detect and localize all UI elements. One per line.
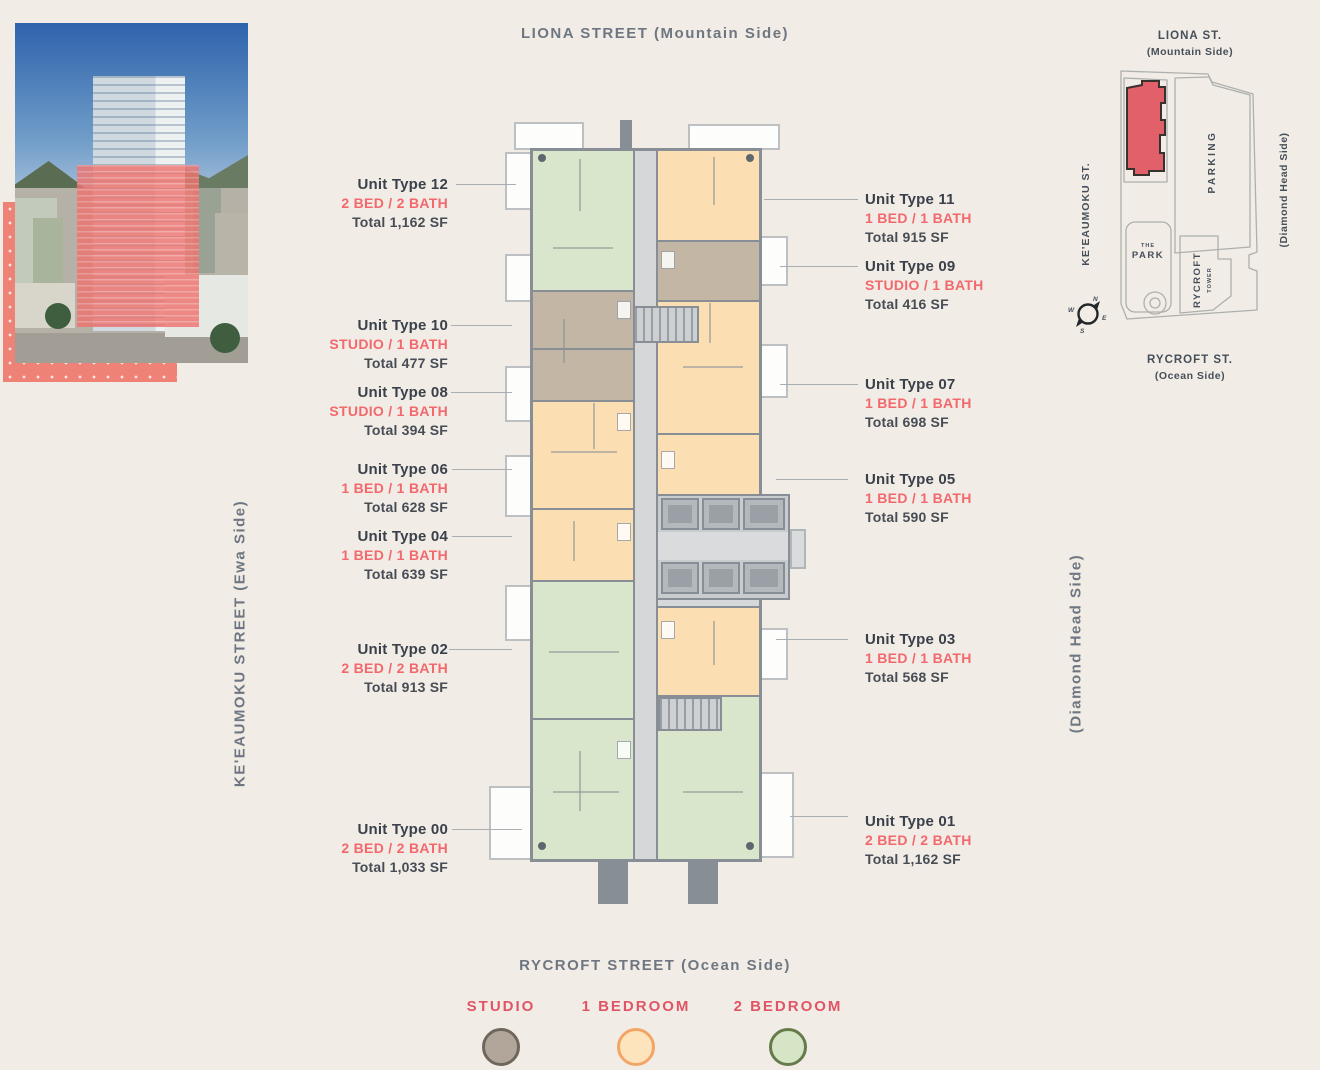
- unit-area: Total 628 SF: [228, 498, 448, 517]
- wall-segment: [713, 157, 715, 205]
- wall-fin: [688, 858, 718, 904]
- legend-swatch-studio: [482, 1028, 520, 1066]
- unit-name: Unit Type 07: [865, 375, 1085, 394]
- sitemap-keeaumoku-st: KE'EAUMOKU ST.: [1080, 162, 1092, 265]
- unit-area: Total 394 SF: [228, 421, 448, 440]
- unit-config: 1 BED / 1 BATH: [865, 209, 1085, 228]
- unit-label-10: Unit Type 10 STUDIO / 1 BATH Total 477 S…: [228, 316, 448, 373]
- corridor: [633, 151, 658, 859]
- wall-segment: [658, 433, 759, 435]
- wall-fin: [598, 858, 628, 904]
- bathroom-fixture: [617, 301, 631, 319]
- unit-08-region: [533, 348, 633, 400]
- unit-name: Unit Type 05: [865, 470, 1085, 489]
- label-connector: [776, 639, 848, 640]
- unit-area: Total 698 SF: [865, 413, 1085, 432]
- unit-label-03: Unit Type 03 1 BED / 1 BATH Total 568 SF: [865, 630, 1085, 687]
- wall-segment: [579, 751, 581, 811]
- column: [746, 154, 754, 162]
- elevator: [661, 498, 699, 530]
- column: [538, 842, 546, 850]
- floorplan-page: LIONA STREET (Mountain Side) RYCROFT STR…: [0, 0, 1320, 1070]
- unit-area: Total 1,033 SF: [228, 858, 448, 877]
- sitemap-park-the: THE: [1141, 243, 1155, 249]
- balcony: [505, 152, 533, 210]
- unit-area: Total 416 SF: [865, 295, 1085, 314]
- highlighted-building-footprint: [1127, 81, 1165, 175]
- label-connector: [456, 184, 516, 185]
- unit-10-region: [533, 290, 633, 348]
- street-label-liona: LIONA STREET (Mountain Side): [435, 25, 875, 42]
- unit-name: Unit Type 04: [228, 527, 448, 546]
- elevator: [743, 498, 785, 530]
- balcony: [760, 344, 788, 398]
- wall-segment: [553, 247, 613, 249]
- unit-name: Unit Type 10: [228, 316, 448, 335]
- sitemap-mountain-side: (Mountain Side): [1147, 46, 1233, 58]
- elevator: [702, 562, 740, 594]
- bathroom-fixture: [617, 523, 631, 541]
- sitemap-parking: PARKING: [1207, 131, 1218, 194]
- balcony: [505, 455, 533, 517]
- elevator: [743, 562, 785, 594]
- bathroom-fixture: [661, 451, 675, 469]
- legend-label-2-bedroom: 2 BEDROOM: [708, 998, 868, 1015]
- unit-config: 1 BED / 1 BATH: [228, 546, 448, 565]
- unit-label-08: Unit Type 08 STUDIO / 1 BATH Total 394 S…: [228, 383, 448, 440]
- legend-swatch-2-bedroom: [769, 1028, 807, 1066]
- sitemap-ocean-side: (Ocean Side): [1155, 370, 1225, 382]
- unit-area: Total 913 SF: [228, 678, 448, 697]
- balcony: [505, 585, 533, 641]
- unit-12-region: [533, 151, 633, 290]
- label-connector: [452, 829, 522, 830]
- unit-name: Unit Type 00: [228, 820, 448, 839]
- unit-area: Total 568 SF: [865, 668, 1085, 687]
- label-connector: [452, 469, 512, 470]
- unit-name: Unit Type 06: [228, 460, 448, 479]
- unit-area: Total 1,162 SF: [865, 850, 1085, 869]
- sitemap-tower: TOWER: [1207, 267, 1213, 292]
- balcony: [514, 122, 584, 150]
- unit-09-region: [658, 240, 759, 300]
- bathroom-fixture: [617, 413, 631, 431]
- unit-name: Unit Type 09: [865, 257, 1085, 276]
- balcony: [760, 628, 788, 680]
- sitemap-park: PARK: [1132, 250, 1164, 261]
- unit-config: STUDIO / 1 BATH: [865, 276, 1085, 295]
- wall-segment: [533, 348, 633, 350]
- column: [538, 154, 546, 162]
- site-map: N E S W LIONA ST. (Mountain Side) KE'EAU…: [1063, 14, 1317, 386]
- unit-name: Unit Type 02: [228, 640, 448, 659]
- bathroom-fixture: [661, 621, 675, 639]
- elevator-lobby: [658, 532, 788, 560]
- label-connector: [764, 199, 858, 200]
- unit-config: STUDIO / 1 BATH: [228, 335, 448, 354]
- elevator-core: [656, 494, 790, 600]
- wall-segment: [579, 159, 581, 211]
- unit-config: 1 BED / 1 BATH: [228, 479, 448, 498]
- wall-segment: [533, 400, 633, 402]
- wall-segment: [713, 621, 715, 665]
- unit-name: Unit Type 03: [865, 630, 1085, 649]
- wall-segment: [658, 240, 759, 242]
- label-connector: [449, 649, 512, 650]
- unit-11-region: [658, 151, 759, 240]
- column: [746, 842, 754, 850]
- unit-label-01: Unit Type 01 2 BED / 2 BATH Total 1,162 …: [865, 812, 1085, 869]
- unit-config: 1 BED / 1 BATH: [865, 649, 1085, 668]
- unit-config: 2 BED / 2 BATH: [228, 194, 448, 213]
- label-connector: [451, 392, 512, 393]
- unit-name: Unit Type 12: [228, 175, 448, 194]
- wall-segment: [709, 303, 711, 343]
- tower-photo: [15, 23, 248, 363]
- unit-area: Total 477 SF: [228, 354, 448, 373]
- bathroom-fixture: [617, 741, 631, 759]
- unit-area: Total 1,162 SF: [228, 213, 448, 232]
- unit-config: 1 BED / 1 BATH: [865, 394, 1085, 413]
- balcony: [505, 254, 533, 302]
- bathroom-fixture: [661, 251, 675, 269]
- wall-segment: [549, 651, 619, 653]
- label-connector: [790, 816, 848, 817]
- wall-segment: [551, 451, 617, 453]
- unit-config: 1 BED / 1 BATH: [865, 489, 1085, 508]
- unit-label-06: Unit Type 06 1 BED / 1 BATH Total 628 SF: [228, 460, 448, 517]
- unit-label-02: Unit Type 02 2 BED / 2 BATH Total 913 SF: [228, 640, 448, 697]
- unit-area: Total 639 SF: [228, 565, 448, 584]
- svg-text:W: W: [1068, 307, 1075, 314]
- unit-config: STUDIO / 1 BATH: [228, 402, 448, 421]
- label-connector: [780, 384, 858, 385]
- wall-segment: [553, 791, 619, 793]
- floor-plan: [530, 148, 762, 862]
- unit-00-region: [533, 718, 633, 859]
- unit-label-09: Unit Type 09 STUDIO / 1 BATH Total 416 S…: [865, 257, 1085, 314]
- unit-04-region: [533, 508, 633, 580]
- svg-text:S: S: [1080, 328, 1085, 335]
- unit-03-region: [658, 606, 759, 695]
- unit-label-00: Unit Type 00 2 BED / 2 BATH Total 1,033 …: [228, 820, 448, 877]
- balcony: [760, 772, 794, 858]
- unit-label-12: Unit Type 12 2 BED / 2 BATH Total 1,162 …: [228, 175, 448, 232]
- legend-label-1-bedroom: 1 BEDROOM: [556, 998, 716, 1015]
- wall-segment: [683, 366, 743, 368]
- unit-name: Unit Type 11: [865, 190, 1085, 209]
- unit-config: 2 BED / 2 BATH: [228, 659, 448, 678]
- sitemap-rycroft-st: RYCROFT ST.: [1147, 354, 1233, 366]
- wall-segment: [658, 606, 759, 608]
- wall-segment: [563, 319, 565, 363]
- label-connector: [780, 266, 858, 267]
- balcony: [489, 786, 533, 860]
- sitemap-rycroft-tower: RYCROFT: [1192, 252, 1203, 308]
- sitemap-liona-st: LIONA ST.: [1158, 30, 1222, 42]
- stairwell: [633, 306, 699, 343]
- wall-segment: [633, 151, 635, 859]
- stairwell: [658, 697, 722, 731]
- unit-config: 2 BED / 2 BATH: [865, 831, 1085, 850]
- wall-segment: [573, 521, 575, 561]
- unit-label-11: Unit Type 11 1 BED / 1 BATH Total 915 SF: [865, 190, 1085, 247]
- label-connector: [776, 479, 848, 480]
- unit-02-region: [533, 580, 633, 718]
- wall-segment: [683, 791, 743, 793]
- wall-segment: [533, 290, 633, 292]
- legend-swatch-1-bedroom: [617, 1028, 655, 1066]
- service-vestibule: [790, 529, 806, 569]
- balcony: [505, 366, 533, 422]
- unit-label-04: Unit Type 04 1 BED / 1 BATH Total 639 SF: [228, 527, 448, 584]
- svg-text:E: E: [1102, 315, 1107, 322]
- wall-segment: [533, 718, 633, 720]
- label-connector: [451, 325, 512, 326]
- unit-name: Unit Type 08: [228, 383, 448, 402]
- unit-name: Unit Type 01: [865, 812, 1085, 831]
- sitemap-diamond-head-side: (Diamond Head Side): [1278, 132, 1290, 247]
- unit-label-07: Unit Type 07 1 BED / 1 BATH Total 698 SF: [865, 375, 1085, 432]
- unit-label-05: Unit Type 05 1 BED / 1 BATH Total 590 SF: [865, 470, 1085, 527]
- elevator: [702, 498, 740, 530]
- wall-segment: [658, 300, 759, 302]
- tower-highlight-overlay: [77, 165, 199, 327]
- tree: [45, 303, 71, 329]
- wall-fin: [620, 120, 632, 150]
- wall-segment: [533, 508, 633, 510]
- compass-icon: N E S W: [1068, 296, 1107, 335]
- wall-segment: [593, 403, 595, 449]
- elevator: [661, 562, 699, 594]
- wall-segment: [533, 580, 633, 582]
- unit-area: Total 915 SF: [865, 228, 1085, 247]
- label-connector: [452, 536, 512, 537]
- balcony: [688, 124, 780, 150]
- unit-config: 2 BED / 2 BATH: [228, 839, 448, 858]
- svg-text:N: N: [1093, 296, 1098, 303]
- unit-area: Total 590 SF: [865, 508, 1085, 527]
- balcony: [760, 236, 788, 286]
- street-label-rycroft: RYCROFT STREET (Ocean Side): [435, 957, 875, 974]
